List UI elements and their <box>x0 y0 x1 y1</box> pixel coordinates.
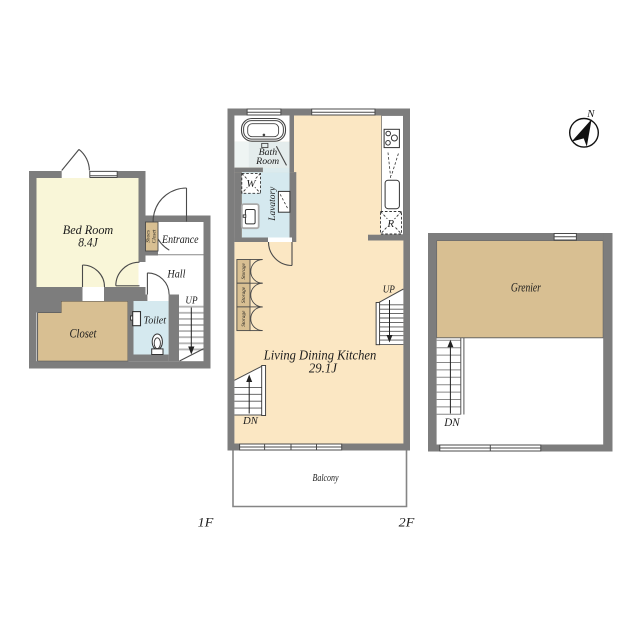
svg-text:Closet: Closet <box>70 327 97 341</box>
svg-text:Grenier: Grenier <box>511 281 541 295</box>
svg-text:W: W <box>246 178 256 190</box>
svg-text:N: N <box>586 108 595 120</box>
svg-text:8.4J: 8.4J <box>78 234 99 249</box>
svg-text:UP: UP <box>185 296 198 307</box>
svg-text:Closet: Closet <box>151 229 157 243</box>
svg-text:2F: 2F <box>399 515 416 530</box>
svg-text:Hall: Hall <box>167 267 186 281</box>
svg-text:UP: UP <box>383 285 396 296</box>
svg-text:Entrance: Entrance <box>161 234 198 246</box>
svg-text:1F: 1F <box>198 515 215 530</box>
svg-text:Lavatory: Lavatory <box>268 186 278 222</box>
svg-text:Room: Room <box>255 157 279 167</box>
svg-text:Storage: Storage <box>241 310 247 327</box>
svg-text:Toilet: Toilet <box>144 316 167 327</box>
svg-text:Balcony: Balcony <box>313 472 339 484</box>
svg-text:DN: DN <box>242 415 258 427</box>
svg-text:Storage: Storage <box>241 286 247 303</box>
svg-text:DN: DN <box>443 417 461 429</box>
svg-text:Storage: Storage <box>241 263 247 280</box>
svg-text:R: R <box>386 218 394 230</box>
svg-text:29.1J: 29.1J <box>309 360 338 375</box>
